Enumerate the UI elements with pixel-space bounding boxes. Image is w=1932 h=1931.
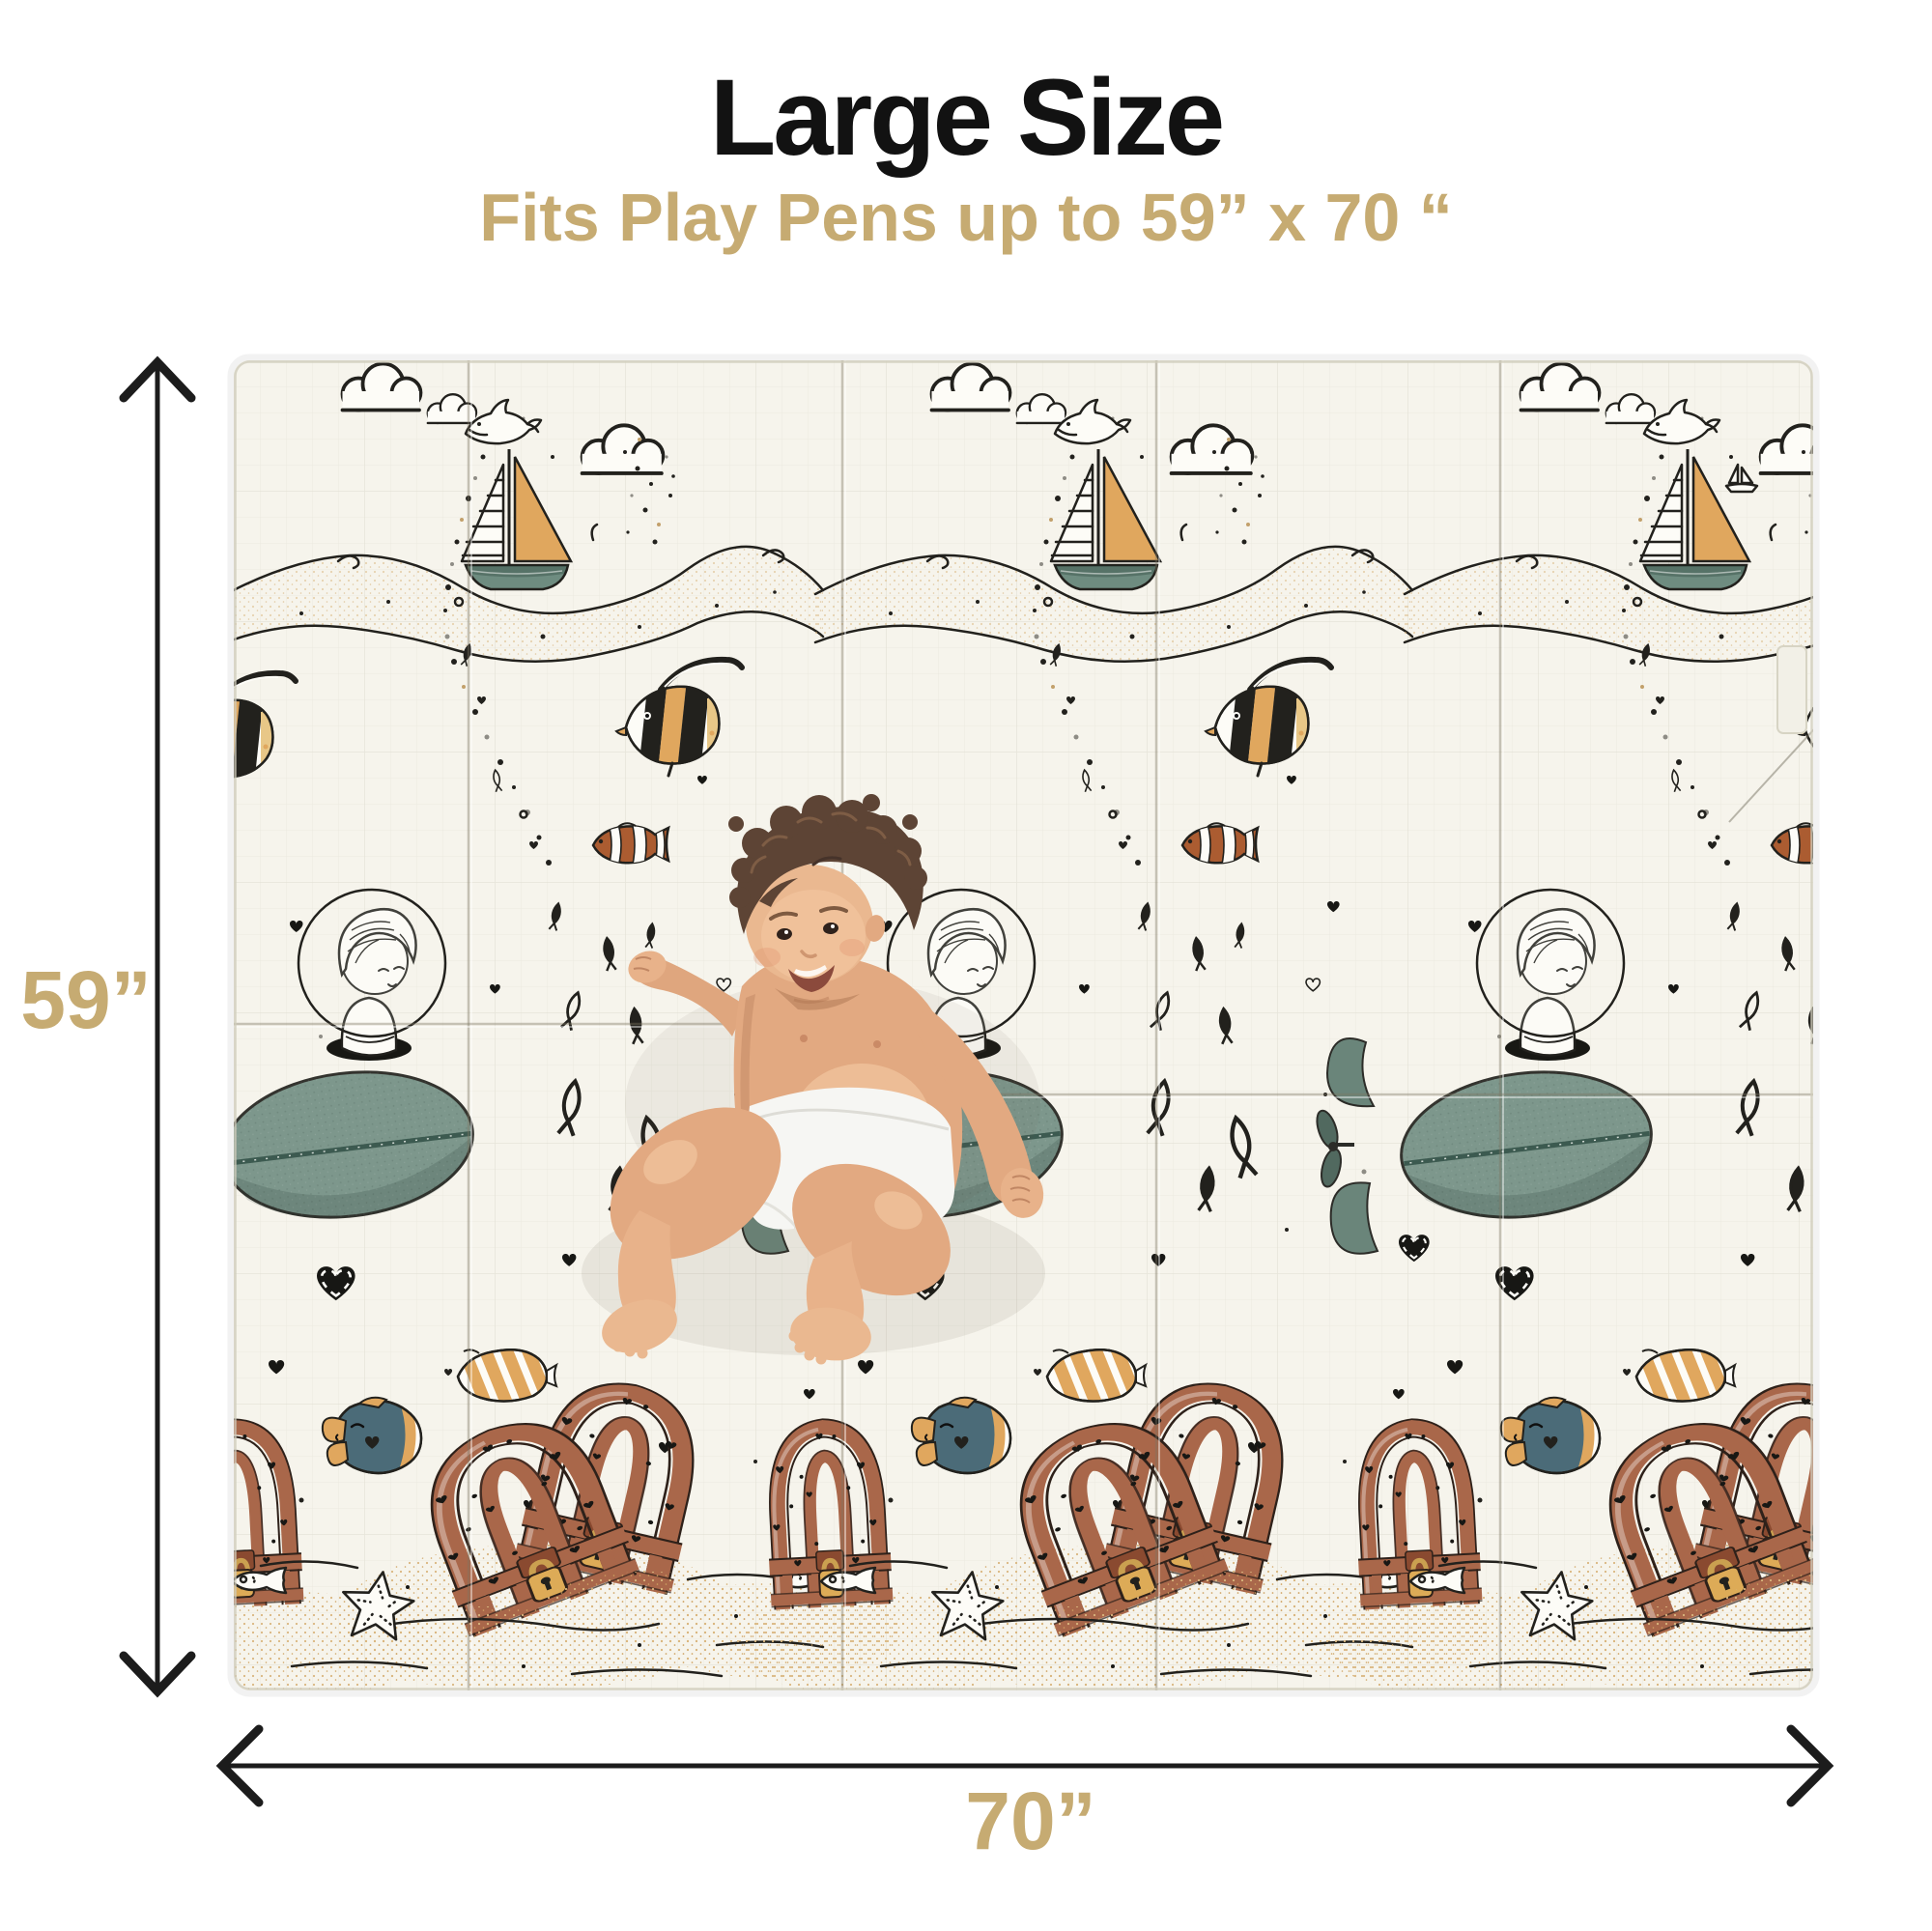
mat-strap-tab [1777,646,1806,733]
height-dimension-label: 59” [4,958,168,1041]
page-subtitle: Fits Play Pens up to 59” x 70 “ [0,182,1932,253]
page-title: Large Size [0,64,1932,172]
play-mat-illustration [0,0,1932,1931]
product-infographic: { "page": { "type": "product-size-infogr… [0,0,1932,1931]
play-mat [134,357,1932,1698]
width-dimension-label: 70” [886,1779,1176,1862]
